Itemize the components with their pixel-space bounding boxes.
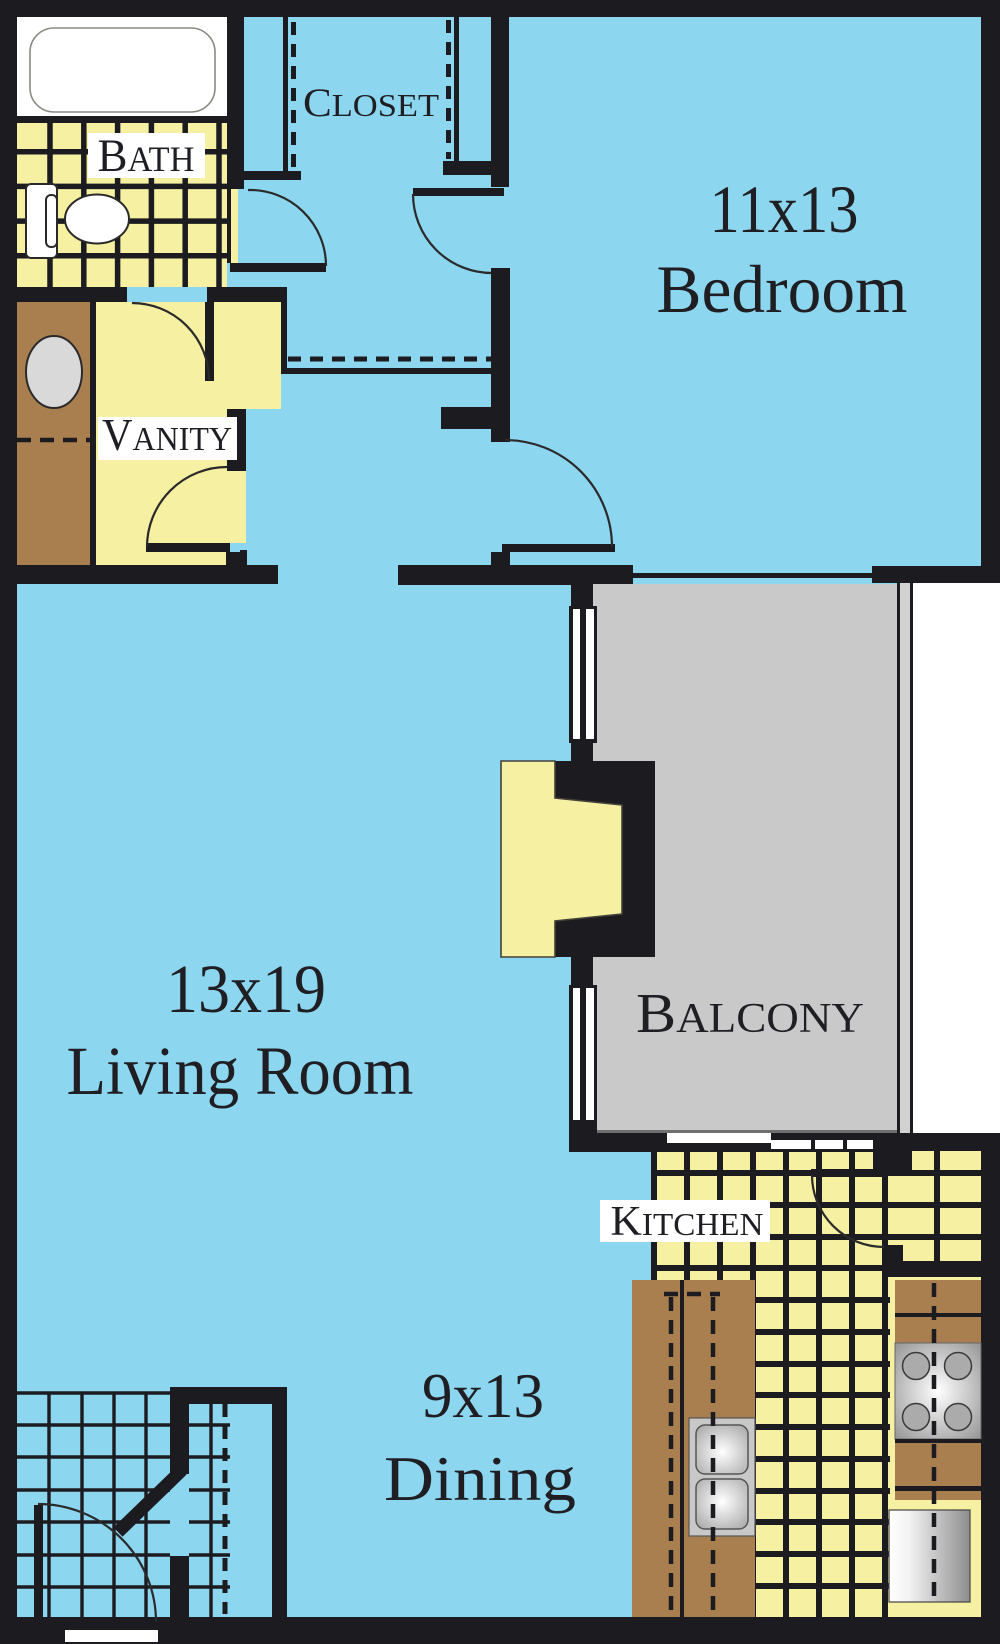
svg-text:Bedroom: Bedroom xyxy=(657,251,908,327)
svg-text:Living Room: Living Room xyxy=(67,1033,414,1109)
svg-text:11x13: 11x13 xyxy=(710,171,859,247)
svg-text:CLOSET: CLOSET xyxy=(303,80,439,125)
svg-text:KITCHEN: KITCHEN xyxy=(611,1199,764,1245)
svg-text:Dining: Dining xyxy=(384,1444,576,1514)
svg-text:13x19: 13x19 xyxy=(166,951,326,1027)
svg-text:9x13: 9x13 xyxy=(422,1361,544,1431)
